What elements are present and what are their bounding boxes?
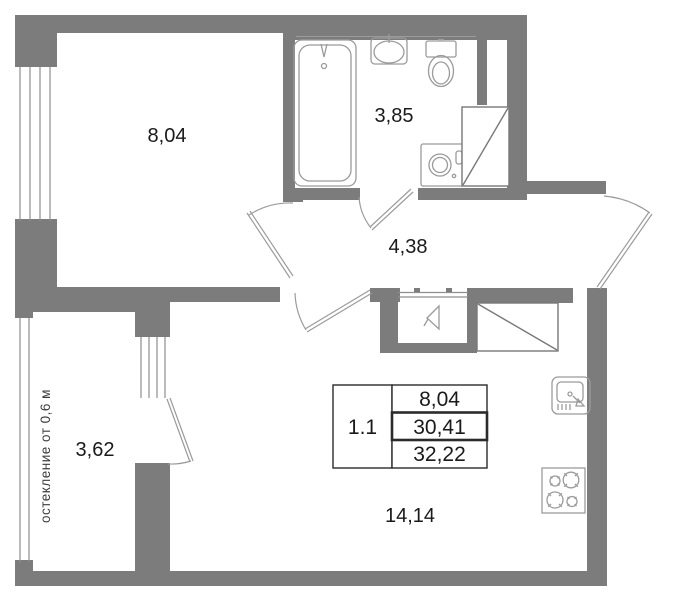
wall-left-block	[15, 219, 57, 290]
wall-bath-partition	[477, 33, 487, 105]
shower-box	[462, 107, 509, 186]
burner-large-tr	[563, 472, 579, 488]
wall-niche-bottom	[380, 343, 470, 353]
wall-balcony-divider-top	[135, 290, 170, 337]
stove	[542, 468, 585, 513]
entrance-door	[597, 196, 652, 289]
living-area-value: 8,04	[419, 388, 460, 411]
burner-small-br	[567, 497, 577, 507]
wall-hall-topright	[507, 181, 606, 194]
wall-bottom	[15, 571, 607, 586]
wall-right	[587, 288, 607, 586]
doors	[167, 189, 652, 464]
wall-balcony-left-top	[15, 300, 33, 318]
wall-balcony-left-bottom	[15, 560, 33, 574]
balcony-glazing	[20, 318, 29, 562]
balcony-area-label: 3,62	[76, 439, 115, 461]
floor-plan: 8,04 3,85 4,38 3,62 14,14 остекление от …	[0, 0, 684, 600]
wall-balcony-divider-bottom	[135, 463, 170, 573]
total-area-value: 32,22	[413, 443, 466, 466]
wall-room-bath	[283, 33, 295, 202]
apartment-area-value: 30,41	[413, 416, 466, 439]
washbasin	[371, 34, 407, 64]
bathroom-area-label: 3,85	[375, 105, 414, 127]
hall-living-door	[295, 290, 372, 332]
wall-hall-bottom-right	[467, 288, 573, 303]
washing-machine	[421, 144, 463, 186]
wall-bath-right	[507, 15, 527, 194]
wall-corner-topleft	[15, 15, 57, 67]
bedroom-door	[247, 203, 293, 278]
burner-large-bl	[547, 492, 563, 508]
kitchen-sink	[552, 377, 590, 414]
burner-small-tl	[550, 476, 560, 486]
kitchen-living-area-label: 14,14	[385, 505, 435, 527]
bedroom-window	[20, 67, 50, 221]
info-table: 1.1 8,04 30,41 32,22	[333, 385, 487, 468]
glazing-note: остекление от 0,6 м	[38, 389, 53, 523]
entrance-marker-icon	[424, 306, 439, 329]
bedroom-area-label: 8,04	[148, 125, 187, 147]
walls	[15, 15, 607, 586]
balcony-door	[167, 398, 193, 464]
entry-niche-threshold	[398, 288, 468, 297]
floor-plan-drawing: 8,04 3,85 4,38 3,62 14,14 остекление от …	[0, 0, 684, 600]
bathtub	[294, 40, 356, 186]
wall-bath-bottom-left	[283, 188, 360, 200]
bathroom-door	[359, 189, 413, 230]
wardrobe	[477, 303, 558, 351]
unit-number: 1.1	[348, 416, 377, 439]
hall-area-label: 4,38	[389, 236, 428, 258]
balcony-window	[141, 337, 165, 398]
toilet	[426, 40, 456, 87]
